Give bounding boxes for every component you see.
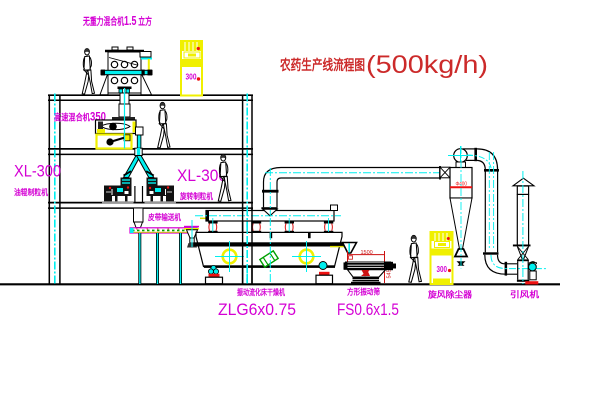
svg-text:皮带输送机: 皮带输送机 [147,212,181,222]
svg-text:545: 545 [387,269,393,278]
svg-text:油辊制粒机: 油辊制粒机 [14,187,48,197]
svg-text:FS0.6x1.5: FS0.6x1.5 [337,300,399,319]
svg-text:旋风除尘器: 旋风除尘器 [427,290,473,300]
svg-text:300: 300 [437,265,448,274]
svg-text:(500kg/h): (500kg/h) [366,51,488,79]
svg-text:XL-300: XL-300 [14,162,61,181]
svg-text:1500: 1500 [361,250,373,256]
svg-text:方形振动筛: 方形振动筛 [347,287,380,297]
svg-text:农药生产线流程图: 农药生产线流程图 [279,57,365,73]
svg-text:ZLG6x0.75: ZLG6x0.75 [218,300,296,319]
svg-text:旋转制粒机: 旋转制粒机 [179,191,213,201]
svg-text:引风机: 引风机 [510,290,540,300]
svg-text:振动流化床干燥机: 振动流化床干燥机 [237,287,285,297]
svg-text:300: 300 [186,72,197,82]
